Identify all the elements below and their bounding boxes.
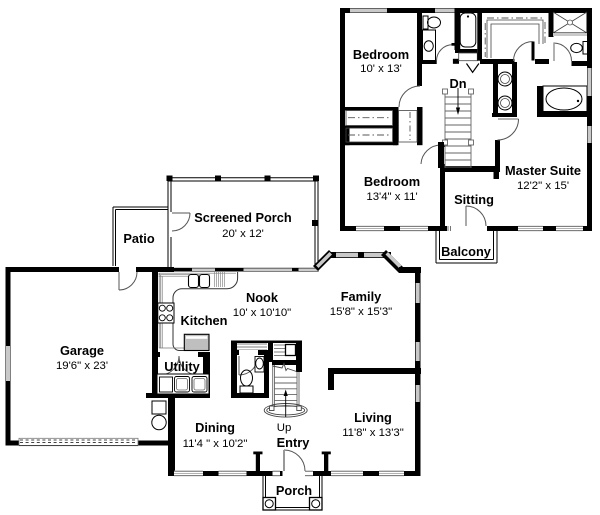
svg-text:11'8" x 13'3": 11'8" x 13'3"	[342, 427, 404, 439]
svg-text:Dn: Dn	[449, 76, 466, 91]
svg-text:Up: Up	[277, 422, 292, 434]
svg-text:Master Suite: Master Suite	[505, 163, 581, 178]
svg-text:20' x 12': 20' x 12'	[222, 228, 264, 240]
svg-text:Sitting: Sitting	[454, 192, 494, 207]
svg-text:Porch: Porch	[276, 483, 312, 498]
svg-text:13'4" x 11': 13'4" x 11'	[366, 191, 417, 203]
svg-text:10' x 13': 10' x 13'	[360, 63, 402, 75]
svg-text:Screened Porch: Screened Porch	[194, 210, 292, 225]
svg-text:Bedroom: Bedroom	[353, 47, 409, 62]
svg-text:Nook: Nook	[246, 290, 279, 305]
svg-text:Patio: Patio	[123, 231, 154, 246]
svg-text:Family: Family	[341, 289, 382, 304]
svg-text:11'4 " x 10'2": 11'4 " x 10'2"	[183, 438, 248, 450]
svg-text:Garage: Garage	[60, 343, 104, 358]
svg-text:Kitchen: Kitchen	[181, 313, 228, 328]
svg-text:19'6" x 23': 19'6" x 23'	[56, 360, 108, 372]
svg-text:Dining: Dining	[195, 420, 235, 435]
svg-text:12'2" x 15': 12'2" x 15'	[517, 180, 569, 192]
svg-text:Utility: Utility	[164, 359, 200, 374]
svg-text:Living: Living	[354, 410, 392, 425]
svg-text:Balcony: Balcony	[441, 244, 492, 259]
svg-text:Entry: Entry	[277, 435, 311, 450]
svg-text:15'8" x 15'3": 15'8" x 15'3"	[330, 306, 392, 318]
svg-text:10' x 10'10": 10' x 10'10"	[233, 307, 291, 319]
svg-text:Bedroom: Bedroom	[364, 174, 420, 189]
